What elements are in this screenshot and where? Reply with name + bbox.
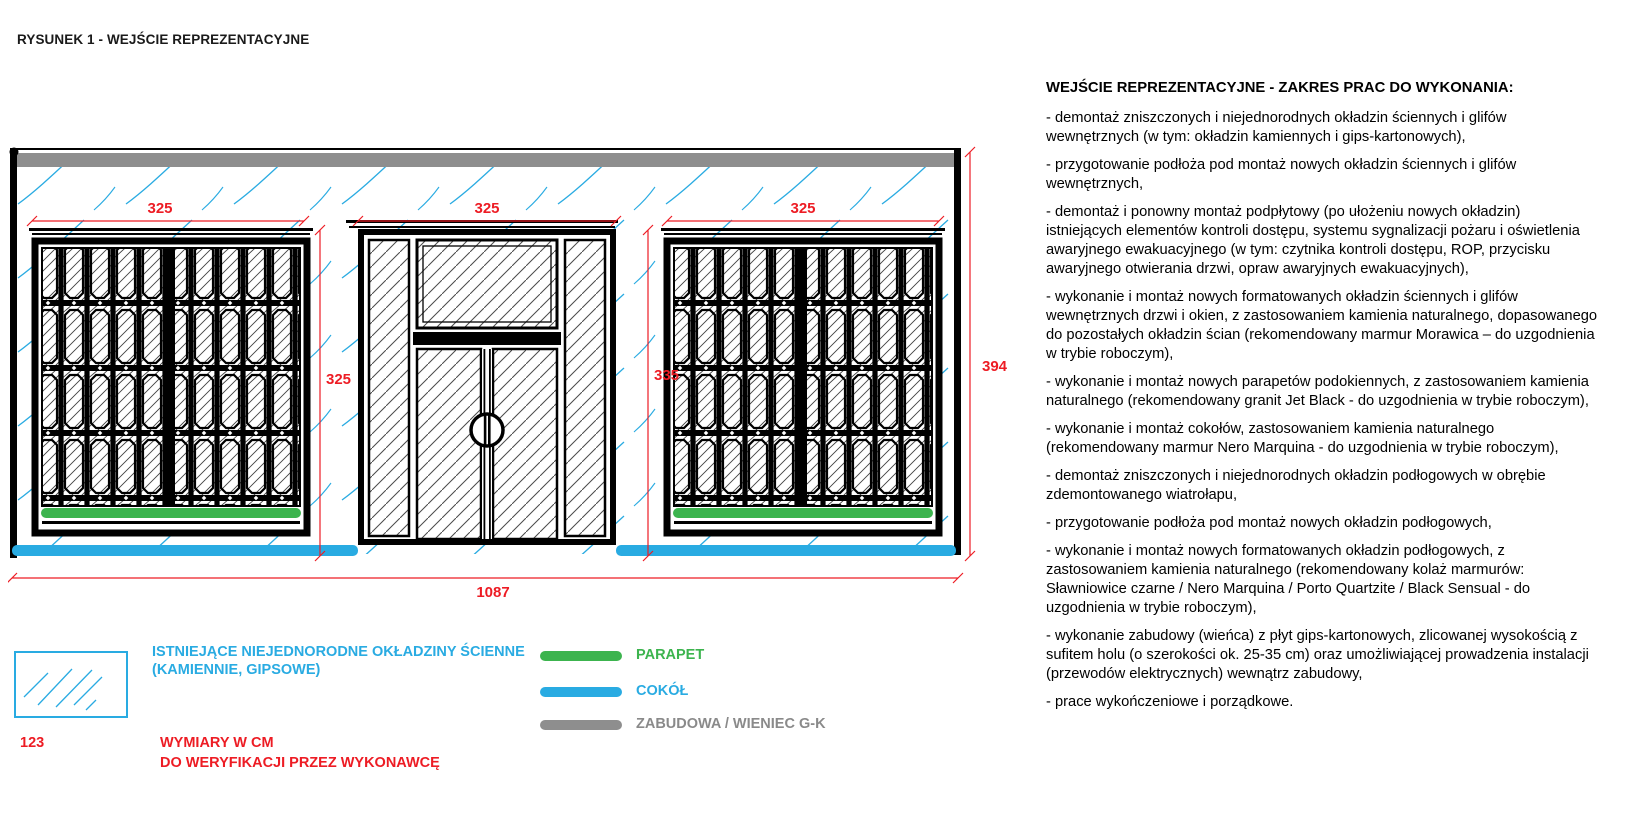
door-sidelight-right (565, 240, 605, 536)
scope-item: - przygotowanie podłoża pod montaż nowyc… (1046, 156, 1598, 194)
door-leaf-left (417, 349, 481, 539)
scope-item: - wykonanie zabudowy (wieńca) z płyt gip… (1046, 627, 1598, 684)
dim-window-height: 325 (326, 371, 351, 388)
legend-sample-dimension: 123 (20, 735, 44, 751)
dim-bay1: 325 (147, 200, 172, 217)
architectural-drawing-page: { "page_title": "RYSUNEK 1 - WEJŚCIE REP… (0, 0, 1629, 836)
dimensions-note-line1: WYMIARY W CM (160, 735, 274, 751)
dim-door-height: 335 (654, 367, 679, 384)
dim-bay3: 325 (790, 200, 815, 217)
right-window (661, 228, 945, 533)
legend-parapet-swatch (540, 651, 622, 661)
dimensions-note-line2: DO WERYFIKACJI PRZEZ WYKONAWCĘ (160, 755, 440, 771)
dim-bay2: 325 (474, 200, 499, 217)
legend-wall-hatch-swatch (14, 651, 128, 718)
door-sidelight-left (369, 240, 409, 536)
door-handle (471, 414, 503, 446)
legend-parapet-label: PARAPET (636, 647, 704, 663)
legend-zabudowa-label: ZABUDOWA / WIENIEC G-K (636, 716, 826, 732)
scope-item: - demontaż zniszczonych i niejednorodnyc… (1046, 109, 1598, 147)
scope-item: - wykonanie i montaż nowych formatowanyc… (1046, 288, 1598, 364)
dim-total-height: 394 (982, 358, 1008, 375)
legend-zabudowa-swatch (540, 720, 622, 730)
wall-hatch-sample-icon (16, 653, 126, 716)
scope-item: - wykonanie i montaż cokołów, zastosowan… (1046, 420, 1598, 458)
legend-cokol-swatch (540, 687, 622, 697)
scope-item: - demontaż zniszczonych i niejednorodnyc… (1046, 467, 1598, 505)
dim-total-width: 1087 (476, 584, 509, 601)
left-window (29, 228, 313, 533)
scope-item: - wykonanie i montaż nowych formatowanyc… (1046, 542, 1598, 618)
wall-frame-right (954, 148, 961, 555)
legend-cokol-label: COKÓŁ (636, 683, 688, 699)
facade-elevation-drawing: 325 325 325 325 335 394 1087 (8, 140, 1028, 610)
scope-item: - demontaż i ponowny montaż podpłytowy (… (1046, 203, 1598, 279)
scope-of-works-panel: WEJŚCIE REPREZENTACYJNE - ZAKRES PRAC DO… (1046, 80, 1598, 721)
wall-frame-left (10, 148, 17, 558)
entrance-door (346, 220, 618, 542)
legend-wall-finishes-label-line1: ISTNIEJĄCE NIEJEDNORODNE OKŁADZINY ŚCIEN… (152, 644, 525, 660)
legend-wall-finishes-label-line2: (KAMIENNIE, GIPSOWE) (152, 662, 320, 678)
door-leaf-right (493, 349, 557, 539)
page-title: RYSUNEK 1 - WEJŚCIE REPREZENTACYJNE (17, 32, 309, 47)
scope-item: - wykonanie i montaż nowych parapetów po… (1046, 373, 1598, 411)
scope-item: - przygotowanie podłoża pod montaż nowyc… (1046, 514, 1598, 533)
scope-item: - prace wykończeniowe i porządkowe. (1046, 693, 1598, 712)
scope-title: WEJŚCIE REPREZENTACYJNE - ZAKRES PRAC DO… (1046, 80, 1598, 96)
zabudowa-wieniec-gk-band (10, 148, 962, 168)
door-transom (417, 240, 557, 328)
